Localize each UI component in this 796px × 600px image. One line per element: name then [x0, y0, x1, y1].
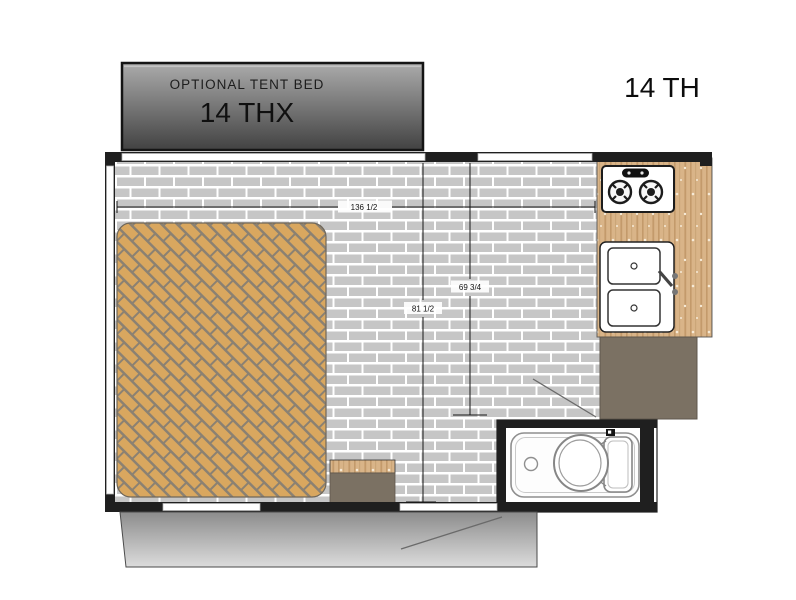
bath-wall-left — [497, 420, 506, 512]
entry-step — [330, 460, 395, 506]
window-bottom-left — [163, 504, 260, 511]
window-left — [107, 166, 114, 494]
tent-bed-model: 14 THX — [200, 97, 295, 128]
sink-icon — [600, 242, 678, 332]
ramp-door — [120, 512, 537, 567]
plan-title: 14 TH — [624, 72, 700, 103]
entry-step-top — [330, 460, 395, 473]
bath-wall-top — [497, 420, 657, 428]
tent-bed-box: OPTIONAL TENT BED 14 THX — [122, 63, 423, 150]
floorplan-page: OPTIONAL TENT BED 14 THX 14 TH — [0, 0, 796, 600]
dimension-left-length-label: 81 1/2 — [412, 305, 435, 314]
tent-bed-box-highlight — [124, 66, 421, 68]
wall-corner-right — [700, 152, 712, 166]
dimension-right-length-label: 69 3/4 — [459, 283, 482, 292]
dimension-overall-width-label: 136 1/2 — [351, 203, 378, 212]
window-top-left — [122, 154, 425, 161]
shower-drain — [525, 458, 538, 471]
floorplan-drawing: OPTIONAL TENT BED 14 THX 14 TH — [0, 0, 796, 600]
stove-icon — [602, 166, 674, 212]
window-bottom-right — [400, 504, 497, 511]
sink-drain-top — [631, 263, 637, 269]
burner-right — [640, 181, 662, 203]
sink-drain-bottom — [631, 305, 637, 311]
wet-bath — [497, 420, 657, 512]
storage-cabinet — [600, 337, 697, 419]
window-top-right — [478, 154, 592, 161]
bed-mattress — [117, 223, 326, 497]
bath-wall-right — [640, 420, 654, 512]
burner-left — [609, 181, 631, 203]
tent-bed-label: OPTIONAL TENT BED — [170, 77, 325, 92]
toilet-bowl — [554, 435, 608, 491]
entry-step-base — [330, 473, 395, 506]
